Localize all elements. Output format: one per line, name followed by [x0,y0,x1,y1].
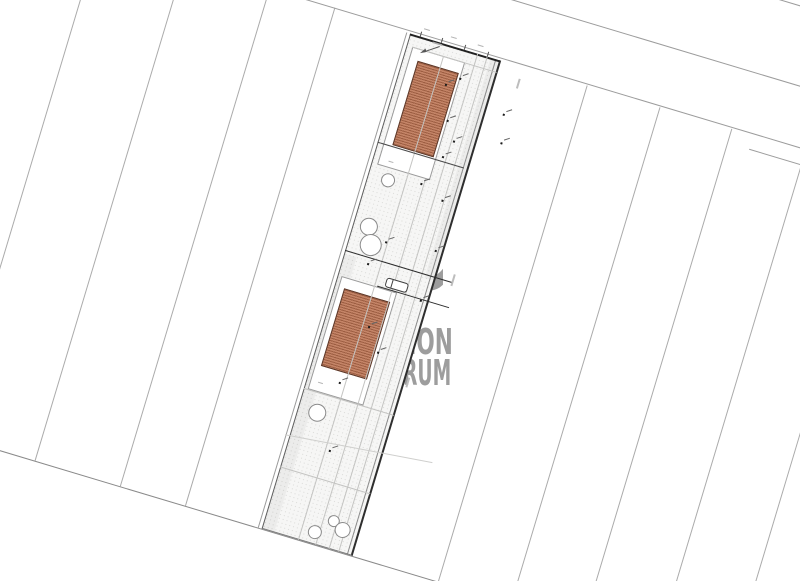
vehicle-windshield-line [390,280,393,288]
site-plan-image: OC OTTHON CENTRUM [0,0,800,581]
